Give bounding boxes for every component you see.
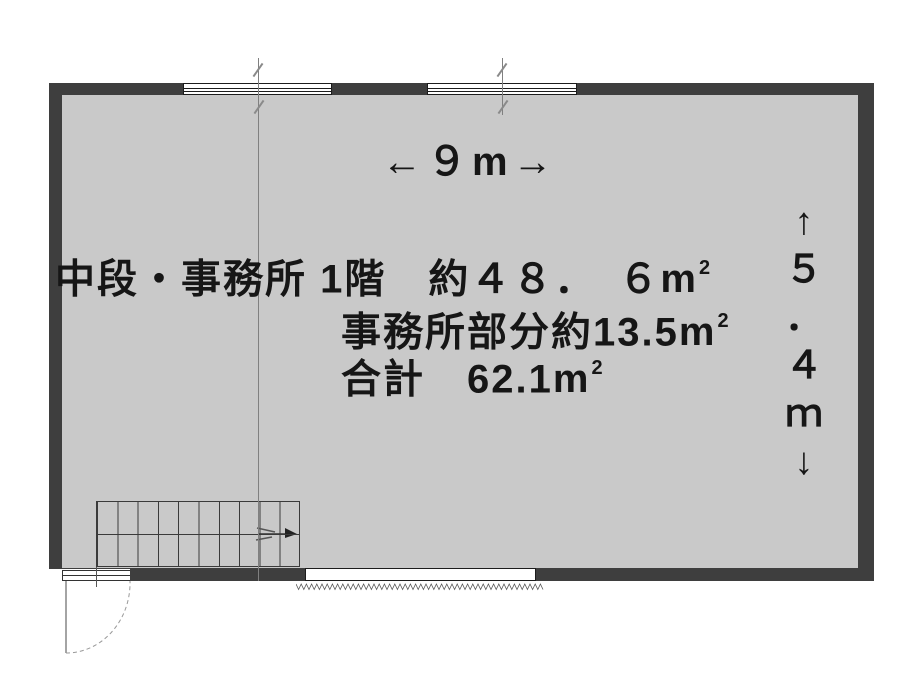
office-area-label: 事務所部分約13.5m2 — [341, 303, 728, 354]
room-area-label: 中段・事務所 1階 約４８． ６m2 — [55, 250, 709, 301]
room-area-text: 中段・事務所 1階 約４８． ６ — [55, 257, 660, 301]
entrance-door — [49, 569, 181, 689]
height-dimension-char: ｍ — [785, 395, 823, 433]
staircase — [96, 501, 300, 567]
width-dimension-label: ←９m→ — [382, 129, 558, 187]
shutter-opening — [305, 568, 536, 581]
square-meter-unit: m2 — [679, 310, 728, 354]
height-dimension-char: ． — [785, 299, 823, 337]
total-area-text: 合計 62.1 — [341, 357, 553, 401]
office-area-text: 事務所部分約13.5 — [341, 310, 679, 354]
total-area-label: 合計 62.1m2 — [341, 350, 602, 401]
shutter-zigzag-mark — [296, 582, 544, 592]
square-meter-unit: m2 — [553, 357, 602, 401]
stairs-direction-arrow — [255, 523, 301, 545]
square-meter-unit: m2 — [660, 257, 709, 301]
height-dimension-char: ↓ — [795, 443, 814, 481]
height-dimension-label: ↑５．４ｍ↓ — [781, 203, 827, 481]
height-dimension-char: ↑ — [795, 203, 814, 241]
floor-plan: 中段・事務所 1階 約４８． ６m2 事務所部分約13.5m2 合計 62.1m… — [0, 0, 915, 700]
door-swing-arc — [66, 581, 130, 653]
height-dimension-char: ５ — [785, 251, 823, 289]
height-dimension-char: ４ — [785, 347, 823, 385]
section-line-left — [258, 58, 259, 581]
